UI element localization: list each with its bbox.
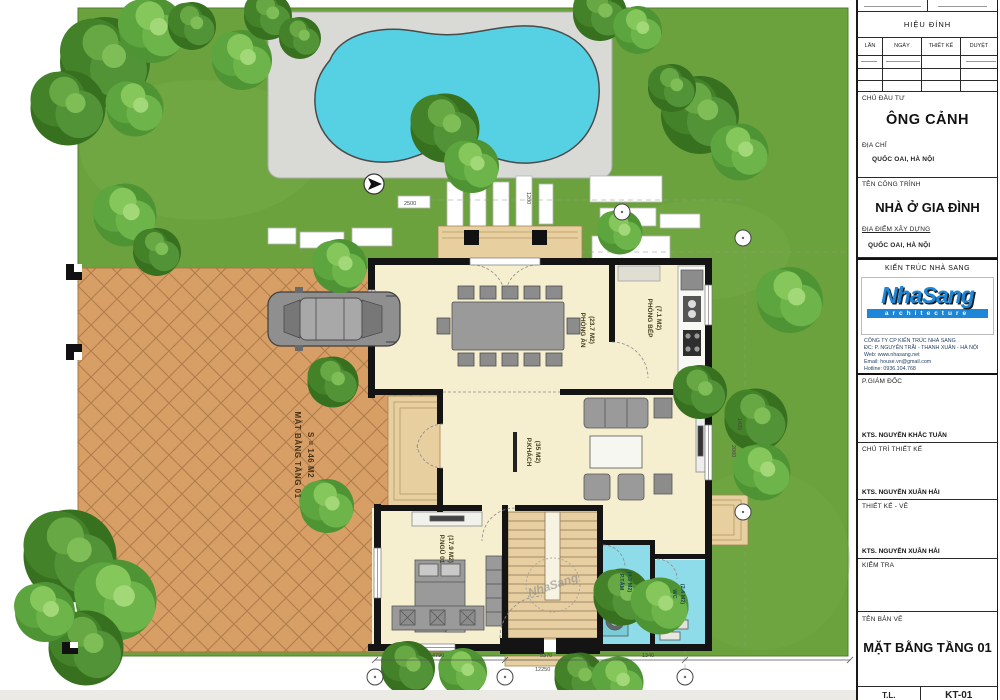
title-block: HIỆU ĐÍNH LẦN NGÀY THIẾT KẾ DUYỆT CHỦ ĐẦ… — [856, 0, 998, 700]
titleblock-top-row — [858, 0, 997, 12]
col-ngay: NGÀY — [883, 43, 921, 49]
dining-table-set — [437, 286, 580, 366]
site-label: ĐỊA ĐIỂM XÂY DỰNG — [862, 226, 930, 233]
dim-1340: 1340 — [642, 653, 654, 659]
label-bath1-area: (4.5 M2) — [626, 572, 632, 593]
address-label: ĐỊA CHỈ — [862, 142, 887, 149]
dim-total-12250: 12250 — [535, 667, 550, 673]
label-bath1: P.TẮM — [618, 574, 626, 591]
house — [368, 226, 748, 666]
north-arrow-icon — [364, 174, 384, 194]
col-lan: LẦN — [858, 43, 882, 49]
pad-dim-2500: 2500 — [404, 201, 416, 207]
drawing-title: MẶT BẰNG TẦNG 01 — [858, 640, 997, 655]
firm-address: ĐC: P. NGUYỄN TRÃI - THANH XUÂN - HÀ NỘI — [864, 345, 995, 351]
project-label: TÊN CÔNG TRÌNH — [862, 181, 921, 188]
dim-4790: 4790 — [432, 653, 444, 659]
label-bedroom-area: (17.9 M2) — [447, 535, 454, 563]
logo-wordmark: NhaSang — [862, 282, 993, 308]
nhasang-logo: NhaSang architecture — [861, 277, 994, 335]
investor-name: ÔNG CẢNH — [858, 112, 997, 128]
entrance-gap — [544, 640, 556, 652]
col-thietke: THIẾT KẾ — [922, 43, 960, 49]
firm-email: Email: house.vn@gmail.com — [864, 359, 995, 365]
sig-checker: KIỂM TRA — [858, 559, 997, 612]
sig-designer: THIẾT KẾ - VẼ KTS. NGUYỄN XUÂN HẢI — [858, 500, 997, 559]
project-name: NHÀ Ở GIA ĐÌNH — [858, 200, 997, 215]
label-dining: PHÒNG ĂN — [579, 312, 588, 347]
revision-header: HIỆU ĐÍNH — [858, 12, 997, 38]
drawing-section: TÊN BẢN VẼ MẶT BẰNG TẦNG 01 — [858, 612, 997, 687]
sig-lead-designer: CHỦ TRÌ THIẾT KẾ KTS. NGUYỄN XUÂN HẢI — [858, 443, 997, 500]
drawing-label: TÊN BẢN VẼ — [862, 616, 903, 623]
dim-2060: 2060 — [730, 445, 736, 457]
dim-1435: 1435 — [736, 418, 742, 430]
site-plan-canvas: 2500 1200 — [0, 0, 857, 700]
firm-hotline: Hotline: 0936.104.768 — [864, 366, 995, 372]
label-living: P.KHÁCH — [525, 438, 534, 467]
label-bath2: WC — [671, 589, 677, 598]
pad-dim-1200: 1200 — [525, 192, 531, 204]
site-value: QUỐC OAI, HÀ NỘI — [868, 242, 930, 249]
address-value: QUỐC OAI, HÀ NỘI — [872, 156, 934, 163]
label-bath2-area: (2.4 M2) — [679, 584, 685, 605]
car — [268, 287, 400, 351]
label-dining-area: (23.7 M2) — [588, 316, 595, 344]
investor-section: CHỦ ĐẦU TƯ ÔNG CẢNH ĐỊA CHỈ QUỐC OAI, HÀ… — [858, 92, 997, 178]
drawing-number: KT-01 — [921, 690, 997, 700]
firm-header: KIẾN TRÚC NHÀ SANG — [858, 265, 997, 272]
side-porch — [388, 396, 440, 506]
dim-5370: 5370 — [540, 653, 552, 659]
firm-section: KIẾN TRÚC NHÀ SANG NhaSang architecture … — [858, 258, 997, 375]
firm-company: CÔNG TY CP KIẾN TRÚC NHÀ SANG — [864, 338, 995, 344]
firm-web: Web: www.nhasang.net — [864, 352, 995, 358]
architectural-drawing-page: 2500 1200 — [0, 0, 1000, 700]
logo-subtitle: architecture — [867, 309, 988, 318]
drawing-number-row: T.L. KT-01 — [858, 687, 997, 700]
label-plan-title: MẶT BẰNG TẦNG 01 — [293, 411, 303, 498]
label-kitchen-area: (7.1 M2) — [655, 306, 662, 330]
investor-label: CHỦ ĐẦU TƯ — [862, 95, 905, 102]
label-plan-area: S = 146 M2 — [306, 432, 315, 478]
sig-director: P.GIÁM ĐỐC KTS. NGUYỄN KHẮC TUẤN — [858, 375, 997, 443]
scale-bar — [513, 432, 517, 472]
scale-label: T.L. — [858, 691, 920, 700]
paper-band — [0, 690, 857, 700]
label-living-area: (35 M2) — [534, 441, 541, 463]
project-section: TÊN CÔNG TRÌNH NHÀ Ở GIA ĐÌNH ĐỊA ĐIỂM X… — [858, 178, 997, 258]
label-bedroom: P.NGỦ 01 — [438, 535, 447, 564]
revision-title: HIỆU ĐÍNH — [858, 20, 997, 29]
col-duyet: DUYỆT — [961, 43, 997, 49]
revision-table: LẦN NGÀY THIẾT KẾ DUYỆT — [858, 38, 997, 92]
